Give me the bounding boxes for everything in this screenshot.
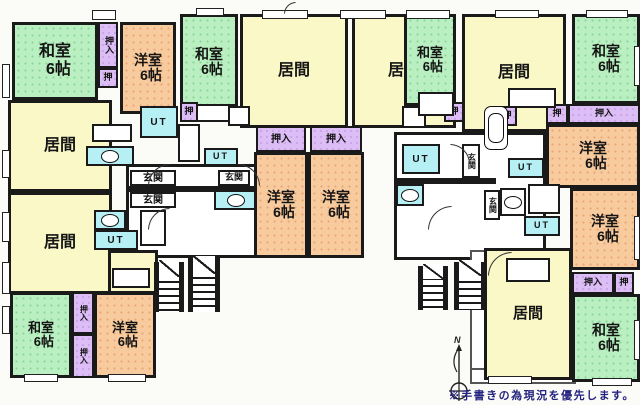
ut-unit-e2: UT — [524, 216, 560, 236]
fixture-counter — [112, 268, 150, 288]
oshiire-bottom-right: 押入 — [572, 272, 614, 294]
toilet-unit-a — [86, 146, 134, 166]
window — [488, 376, 532, 384]
washitsu-bottom-left-label: 和室6帖 — [28, 321, 54, 350]
window — [196, 8, 224, 16]
yoshitsu-unit-b: 洋室6帖 — [254, 152, 308, 258]
ima-bottom-right-label: 居間 — [513, 306, 543, 323]
window — [2, 64, 10, 98]
yoshitsu-unit-e: 洋室6帖 — [570, 188, 640, 270]
toilet-unit-e — [500, 188, 526, 216]
bath-unit-e — [484, 106, 508, 150]
ut-unit-b-label: UT — [213, 152, 229, 162]
ima-left-lower-label: 居間 — [44, 234, 76, 252]
toilet-icon — [504, 196, 522, 209]
oshi-unit-e-label: 押 — [552, 109, 561, 119]
washitsu-bottom-left: 和室6帖 — [10, 292, 72, 378]
washitsu-unit-b: 和室6帖 — [180, 14, 238, 110]
yoshitsu-unit-d-label: 洋室6帖 — [579, 141, 607, 172]
window — [592, 378, 632, 386]
floorplan-canvas: N ※手書きの為現況を優先します。 和室6帖押入押洋室6帖和室6帖居間居間UT押… — [0, 0, 640, 405]
genkan-unit-f: 玄関 — [130, 192, 176, 208]
yoshitsu-top-left: 洋室6帖 — [120, 22, 176, 114]
washitsu-unit-d-label: 和室6帖 — [417, 46, 443, 75]
ima-left-upper-label: 居間 — [44, 137, 76, 155]
oshiire-top-left-label: 押入 — [103, 36, 113, 54]
staircase — [454, 262, 486, 310]
toilet-icon — [101, 214, 119, 227]
fixture-bath — [528, 184, 560, 214]
yoshitsu-unit-c: 洋室6帖 — [308, 152, 364, 258]
toilet-unit-b — [214, 190, 258, 210]
ut-unit-a: UT — [140, 106, 178, 138]
genkan-unit-e: 玄関 — [484, 190, 500, 220]
fixture-bath — [418, 92, 454, 116]
toilet-icon — [401, 189, 419, 202]
oshiire-bottom-right-label: 押入 — [584, 278, 602, 288]
genkan-unit-e-label: 玄関 — [488, 197, 497, 213]
ut-unit-f-label: UT — [107, 235, 124, 246]
washitsu-top-right-label: 和室6帖 — [592, 44, 620, 75]
window — [406, 10, 450, 19]
fixture-counter — [508, 88, 556, 108]
ima-unit-b: 居間 — [240, 14, 348, 128]
fixture-counter — [92, 124, 132, 142]
oshiire-top-left: 押入 — [98, 22, 118, 68]
window — [340, 10, 386, 19]
window — [108, 374, 146, 382]
oshi-bottom-right: 押 — [614, 272, 634, 294]
window — [24, 374, 58, 382]
washitsu-top-left-label: 和室6帖 — [39, 43, 71, 78]
washitsu-unit-b-label: 和室6帖 — [195, 47, 223, 78]
oshiire-bottom-left-1: 押入 — [72, 292, 94, 334]
fixture-counter — [506, 258, 550, 282]
oshi-bottom-right-label: 押 — [619, 278, 628, 288]
toilet-icon — [101, 150, 119, 163]
window — [92, 10, 116, 20]
yoshitsu-unit-b-label: 洋室6帖 — [267, 190, 295, 221]
toilet-unit-f — [94, 210, 126, 230]
window — [634, 46, 640, 86]
genkan-unit-f-label: 玄関 — [143, 195, 163, 206]
oshiire-unit-e: 押入 — [568, 104, 640, 124]
ut-unit-e-label: UT — [518, 163, 534, 173]
ima-unit-b-label: 居間 — [278, 62, 310, 80]
ut-unit-f: UT — [94, 230, 138, 250]
window — [634, 216, 640, 260]
window — [586, 10, 628, 18]
window — [495, 10, 539, 18]
oshiire-unit-b-label: 押入 — [271, 134, 291, 145]
ut-unit-e: UT — [508, 158, 544, 178]
fixture-counter — [228, 106, 250, 126]
washitsu-bottom-right-label: 和室6帖 — [592, 323, 620, 354]
oshi-top-left: 押 — [98, 68, 118, 88]
window — [2, 262, 10, 294]
yoshitsu-unit-e-label: 洋室6帖 — [591, 214, 619, 245]
oshiire-bottom-left-1-label: 押入 — [79, 305, 88, 321]
oshiire-unit-b: 押入 — [256, 126, 306, 152]
oshi-top-left-label: 押 — [103, 73, 112, 83]
oshi-unit-a-label: 押 — [184, 107, 193, 117]
washitsu-top-right: 和室6帖 — [572, 14, 640, 104]
oshiire-unit-e-label: 押入 — [595, 109, 613, 119]
window — [2, 306, 10, 334]
oshiire-bottom-left-2-label: 押入 — [79, 348, 88, 364]
yoshitsu-bottom-left-label: 洋室6帖 — [112, 321, 138, 350]
bathtub-icon — [488, 113, 504, 143]
ut-unit-d: UT — [402, 144, 440, 174]
yoshitsu-bottom-left: 洋室6帖 — [94, 292, 156, 378]
ut-unit-e2-label: UT — [534, 221, 550, 231]
oshiire-bottom-left-2: 押入 — [72, 334, 94, 378]
window — [2, 150, 10, 178]
staircase — [418, 266, 448, 310]
ut-unit-b: UT — [204, 148, 238, 166]
window — [634, 320, 640, 360]
oshiire-unit-c-label: 押入 — [326, 134, 346, 145]
staircase — [154, 262, 184, 312]
window — [2, 212, 10, 242]
staircase — [188, 258, 220, 312]
fixture-bath — [178, 124, 200, 162]
oshiire-unit-c: 押入 — [310, 126, 362, 152]
ut-unit-a-label: UT — [150, 117, 167, 128]
toilet-unit-d — [396, 184, 424, 206]
washitsu-top-left: 和室6帖 — [12, 22, 98, 100]
toilet-icon — [227, 194, 245, 207]
ut-unit-d-label: UT — [412, 154, 429, 165]
yoshitsu-unit-c-label: 洋室6帖 — [322, 190, 350, 221]
yoshitsu-top-left-label: 洋室6帖 — [134, 53, 162, 84]
ima-unit-d-label: 居間 — [498, 64, 530, 82]
disclaimer-note: ※手書きの為現況を優先します。 — [449, 387, 635, 403]
door-swing — [284, 2, 296, 14]
washitsu-bottom-right: 和室6帖 — [572, 294, 640, 382]
north-label: N — [454, 335, 461, 345]
yoshitsu-unit-d: 洋室6帖 — [546, 124, 640, 188]
